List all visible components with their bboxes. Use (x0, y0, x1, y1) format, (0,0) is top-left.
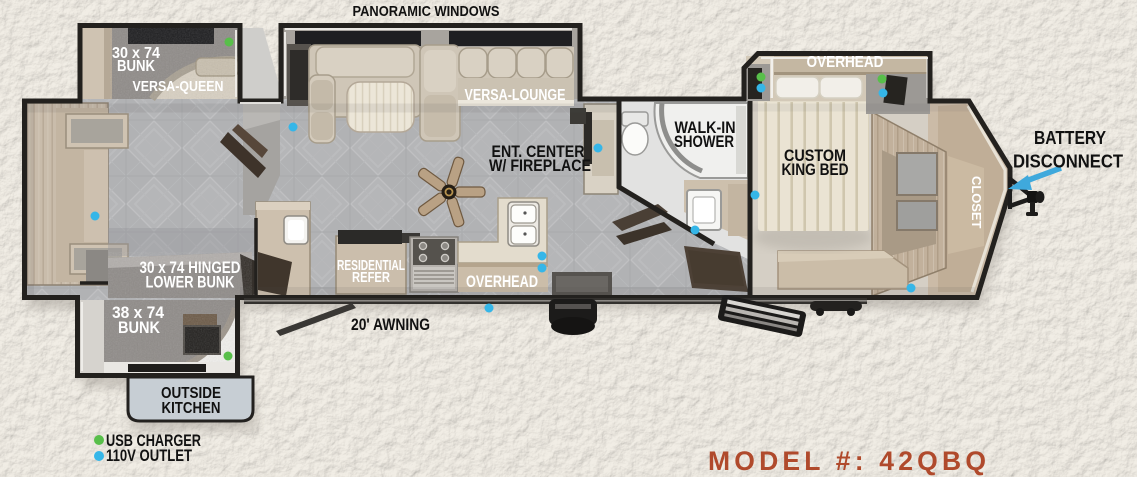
svg-text:OVERHEAD: OVERHEAD (466, 273, 538, 291)
svg-text:OVERHEAD: OVERHEAD (807, 54, 884, 71)
svg-text:LOWER BUNK: LOWER BUNK (146, 273, 236, 292)
svg-text:20' AWNING: 20' AWNING (351, 316, 430, 334)
svg-text:VERSA-QUEEN: VERSA-QUEEN (133, 78, 224, 95)
svg-text:BUNK: BUNK (118, 318, 161, 337)
svg-text:CLOSET: CLOSET (969, 176, 984, 230)
svg-text:VERSA-LOUNGE: VERSA-LOUNGE (465, 87, 566, 104)
svg-text:DISCONNECT: DISCONNECT (1013, 151, 1124, 172)
svg-text:REFER: REFER (352, 270, 390, 286)
svg-text:BUNK: BUNK (117, 58, 156, 75)
svg-text:SHOWER: SHOWER (674, 132, 734, 151)
svg-text:PANORAMIC WINDOWS: PANORAMIC WINDOWS (353, 3, 500, 20)
svg-text:KITCHEN: KITCHEN (162, 400, 221, 417)
svg-text:110V OUTLET: 110V OUTLET (106, 447, 192, 465)
svg-text:MODEL #: 42QBQ: MODEL #: 42QBQ (708, 446, 990, 476)
svg-text:KING BED: KING BED (782, 160, 849, 179)
svg-text:W/ FIREPLACE: W/ FIREPLACE (489, 156, 591, 175)
svg-text:BATTERY: BATTERY (1034, 127, 1107, 148)
